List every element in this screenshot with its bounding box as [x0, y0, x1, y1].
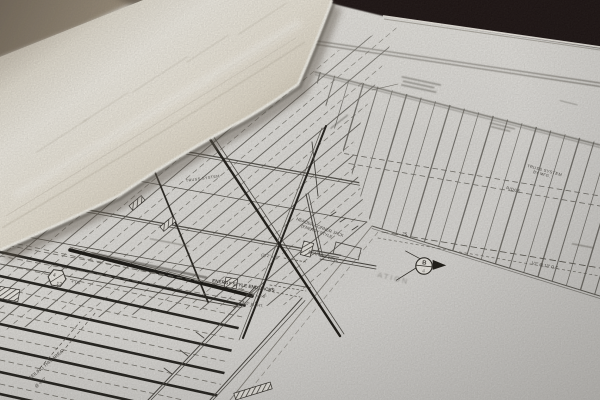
- blueprint-photo: 4 12 + 06 B 4 TRUSS SYSTEM TRUSS SYSTEM …: [0, 0, 600, 400]
- photo-grain: [0, 0, 600, 400]
- photo-canvas: 4 12 + 06 B 4 TRUSS SYSTEM TRUSS SYSTEM …: [0, 0, 600, 400]
